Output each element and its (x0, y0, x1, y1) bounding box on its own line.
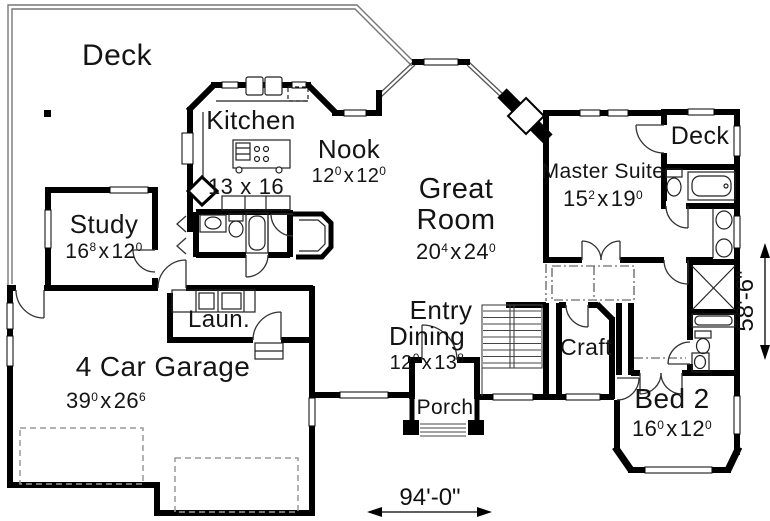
bay-window-lines (379, 62, 503, 97)
bifold-closet-doors (177, 216, 186, 254)
kitchen-sink (246, 77, 263, 95)
room-label-dining: Dining 120x138 (389, 322, 465, 375)
room-label-craft: Craft (560, 335, 612, 360)
staircase (482, 305, 542, 396)
room-dims-garage: 390x266 (66, 386, 146, 413)
walls (7, 62, 740, 516)
sink-icon (716, 211, 732, 229)
room-label-garage: 4 Car Garage (76, 352, 250, 382)
arrow-right-icon (477, 507, 492, 517)
room-label-study: Study 168x120 (65, 210, 142, 264)
dimension-width: 94'-0" (367, 484, 492, 517)
dim-width-text: 94'-0" (399, 484, 460, 511)
shower-icon (692, 266, 735, 310)
room-label-laundry: Laun. (188, 307, 250, 333)
room-label-nook: Nook 120x120 (312, 135, 387, 188)
center-bath-fixtures (200, 212, 268, 253)
room-label-deck-small: Deck (671, 123, 730, 150)
room-label-entry: Entry (410, 296, 473, 324)
room-label-bed2: Bed 2 160x120 (632, 384, 712, 441)
room-label-deck-main: Deck (82, 40, 152, 72)
toilet-icon (229, 214, 243, 221)
alcove-shelf (299, 220, 325, 251)
dim-height-text: 58'-6" (732, 270, 759, 331)
room-label-master-suite: Master Suite 152x190 (542, 161, 665, 210)
toilet-icon (695, 331, 711, 338)
sink-icon (716, 239, 732, 257)
kitchen-fixtures (188, 77, 325, 251)
dishwasher (288, 87, 308, 101)
floor-plan: 94'-0" 58'-6" Deck Kitchen 13x16 Nook 12… (0, 0, 770, 521)
arrow-up-icon (760, 243, 770, 258)
cooktop (236, 143, 250, 160)
right-bath-fixtures (666, 169, 735, 372)
arrow-down-icon (760, 345, 770, 360)
room-label-great-room: Great Room 204x240 (416, 174, 496, 263)
toilet-icon (666, 169, 682, 177)
arrow-left-icon (367, 507, 382, 517)
walk-in-closet (552, 266, 634, 300)
room-dims-kitchen: 13x16 (208, 172, 284, 199)
room-label-kitchen: Kitchen (206, 106, 296, 134)
porch-steps (403, 420, 484, 436)
sink-icon (205, 217, 221, 229)
room-label-porch: Porch (417, 397, 474, 420)
